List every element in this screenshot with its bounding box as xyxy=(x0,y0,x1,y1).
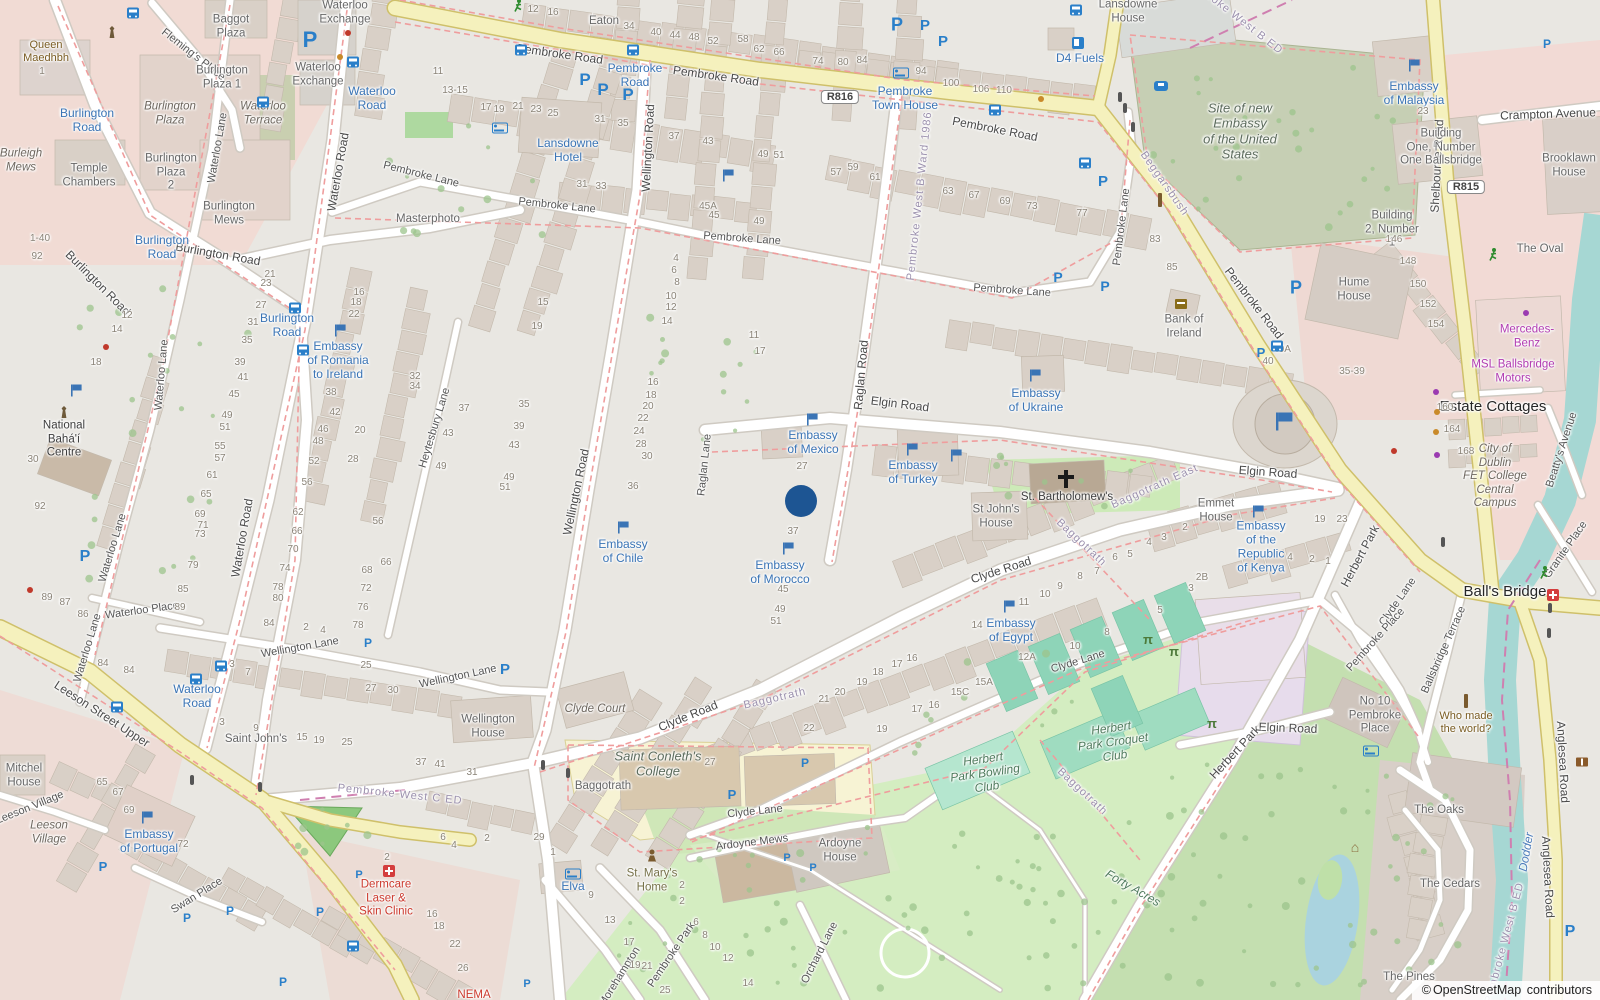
house-number: 41 xyxy=(434,759,445,771)
house-number: 14 xyxy=(111,324,122,336)
house-number: 94 xyxy=(915,66,926,78)
traffic-icon xyxy=(1547,628,1551,638)
house-number: 3 xyxy=(229,659,235,671)
house-number: 11 xyxy=(1019,597,1029,609)
house-number: 15 xyxy=(537,297,548,309)
house-number: 55 xyxy=(214,441,225,453)
flag-icon xyxy=(781,542,795,561)
bus-icon xyxy=(347,57,359,68)
map-label-beatty-s-avenue: Beatty's Avenue xyxy=(1544,411,1581,490)
house-number: 78 xyxy=(272,582,283,594)
bank-icon xyxy=(1175,299,1187,309)
map-label-elgin-road: Elgin Road xyxy=(1258,720,1317,736)
house-number: 39 xyxy=(513,421,524,433)
map-label-st-john-s-house: St John's House xyxy=(973,503,1020,530)
map-attribution: ©OpenStreetMap contributors xyxy=(1412,981,1600,1000)
flag-big-icon xyxy=(1273,411,1295,438)
shop-dot-purple-icon xyxy=(1523,310,1529,316)
map-label-beggarsbush: Beggarsbush xyxy=(1137,149,1191,219)
map-label-embassy-of-egypt: Embassy of Egypt xyxy=(986,616,1035,644)
shop-dot-red-icon xyxy=(103,344,109,350)
map-label-masterphoto: Masterphoto xyxy=(396,213,460,227)
house-number: 34 xyxy=(623,21,634,33)
parking-icon: P xyxy=(1543,35,1551,53)
parking-icon: P xyxy=(938,33,948,51)
house-number: 40 xyxy=(1262,356,1273,368)
map-label-embassy-of-morocco: Embassy of Morocco xyxy=(750,558,809,586)
map-label-bank-of-ireland: Bank of Ireland xyxy=(1165,313,1204,340)
house-number: 18 xyxy=(433,921,444,933)
house-number: 6 xyxy=(1112,552,1118,564)
house-number: 69 xyxy=(999,196,1010,208)
parking-icon: P xyxy=(355,865,362,883)
house-number: 2 xyxy=(1309,554,1315,566)
attribution-suffix: contributors xyxy=(1527,983,1592,997)
parking-icon: P xyxy=(579,70,590,90)
map-label-forty-acres: Forty Acres xyxy=(1103,867,1163,910)
parking-icon: P xyxy=(1098,173,1108,191)
house-number: 41 xyxy=(237,372,248,384)
house-number: 49 xyxy=(221,410,232,422)
house-number: 45 xyxy=(777,584,788,596)
house-number: 110 xyxy=(996,85,1012,97)
parking-icon: P xyxy=(226,902,234,920)
map-label-embassy-of-chile: Embassy of Chile xyxy=(598,537,647,565)
parking-icon: P xyxy=(783,848,790,866)
map-label-pembroke-road: Pembroke Road xyxy=(516,41,604,67)
map-label-building-one-number-one-ballsbridge: Building One, Number One Ballsbridge xyxy=(1400,128,1482,169)
house-number: 14 xyxy=(661,316,672,328)
house-number: 16 xyxy=(928,700,939,712)
map-labels-layer: Pembroke RoadPembroke RoadPembroke RoadP… xyxy=(0,0,1600,1000)
house-number: 1 xyxy=(39,66,45,78)
traffic-icon xyxy=(566,768,570,778)
map-label-waterloo-lane: Waterloo Lane xyxy=(205,112,230,184)
house-number: 18 xyxy=(645,390,656,402)
route-shield-r816: R816 xyxy=(821,90,859,104)
house-number: 17 xyxy=(911,704,922,716)
house-number: 29 xyxy=(533,832,544,844)
house-number: 70 xyxy=(287,544,298,556)
parking-icon: P xyxy=(1100,278,1109,296)
house-number: 56 xyxy=(372,516,383,528)
map-label-morehampton: Morehampton xyxy=(597,945,644,1000)
map-label-nema: NEMA xyxy=(457,989,490,1000)
flag-icon xyxy=(805,413,819,432)
parking-icon: P xyxy=(1565,923,1576,941)
house-number: 15 xyxy=(296,732,307,744)
house-number: 79 xyxy=(187,560,198,572)
map-label-site-of-new-embassy-of-the-united-states: Site of new Embassy of the United States xyxy=(1203,100,1277,161)
map-label-baggot-plaza: Baggot Plaza xyxy=(213,13,249,40)
house-number: 168 xyxy=(1458,446,1475,458)
house-number: 92 xyxy=(34,501,45,513)
house-number: 13 xyxy=(604,915,615,927)
house-number: 15A xyxy=(975,677,993,689)
house-number: 19 xyxy=(876,724,887,736)
house-number: 26 xyxy=(457,963,468,975)
attribution-copyright: © xyxy=(1422,983,1431,997)
bed-icon xyxy=(893,68,909,79)
map-label-waterloo-lane: Waterloo Lane xyxy=(71,612,104,684)
traffic-icon xyxy=(1123,103,1127,113)
house-number: 62 xyxy=(292,507,303,519)
flag-icon xyxy=(905,443,919,462)
map-label-embassy-of-romania-to-ireland: Embassy of Romania to Ireland xyxy=(307,339,368,381)
house-number: 1 xyxy=(1325,556,1331,568)
house-number: 20 xyxy=(354,425,365,437)
house-number: 49 xyxy=(757,149,768,161)
house-number: 85 xyxy=(1166,262,1177,274)
house-number: 35 xyxy=(518,399,529,411)
house-number: 8 xyxy=(702,930,708,942)
flag-icon xyxy=(949,449,963,468)
parking-icon: P xyxy=(279,973,287,991)
map-label-waterloo-road: Waterloo Road xyxy=(228,498,256,579)
house-number: 21 xyxy=(818,694,829,706)
map-label-orchard-lane: Orchard Lane xyxy=(799,920,841,986)
map-label-crampton-avenue: Crampton Avenue xyxy=(1500,105,1596,122)
house-number: 44 xyxy=(669,30,680,42)
house-number: 49 xyxy=(753,216,764,228)
flag-icon xyxy=(1407,59,1421,78)
house-number: 78 xyxy=(352,620,363,632)
house-number: 84 xyxy=(97,658,108,670)
map-label-dodder: Dodder xyxy=(1516,831,1537,872)
flag-icon xyxy=(721,169,735,188)
map-label-baggotrath: Baggotrath xyxy=(575,780,631,794)
shelter-icon: ⌂ xyxy=(1351,839,1359,857)
house-number: 43 xyxy=(508,440,519,452)
house-number: 85 xyxy=(177,584,188,596)
traffic-icon xyxy=(1131,122,1135,132)
map-label-pembroke-place: Pembroke Place xyxy=(1344,606,1408,675)
map-label-pembroke-park: Pembroke Park xyxy=(645,920,698,990)
map-label-waterloo-road: Waterloo Road xyxy=(324,132,352,213)
house-number: 9 xyxy=(253,723,259,735)
house-number: 57 xyxy=(214,453,225,465)
house-number: 18 xyxy=(90,357,101,369)
house-number: 2 xyxy=(303,622,309,634)
map-label-baggotrath: Baggotrath xyxy=(742,686,807,713)
flag-icon xyxy=(1251,505,1265,524)
house-number: 4 xyxy=(1287,552,1293,564)
shop-dot-purple-icon xyxy=(1433,389,1439,395)
house-number: 5 xyxy=(1157,605,1163,617)
house-number: 76 xyxy=(357,602,368,614)
house-number: 17 xyxy=(480,102,491,114)
house-number: 164 xyxy=(1444,424,1461,436)
house-number: 39 xyxy=(234,357,245,369)
map-label-baggotrath-east: Baggotrath East xyxy=(1109,462,1200,512)
house-number: 3 xyxy=(1161,532,1167,544)
house-number: 35-39 xyxy=(1339,366,1365,378)
shop-dot-amber-icon xyxy=(1434,409,1440,415)
house-number: 37 xyxy=(668,131,679,143)
house-number: 51 xyxy=(219,422,230,434)
house-number: 2 xyxy=(384,852,390,864)
house-number: 150 xyxy=(1410,279,1427,291)
map-label-wellington-road: Wellington Road xyxy=(639,104,658,192)
house-number: 45 xyxy=(708,210,719,222)
map-label-emmet-house: Emmet House xyxy=(1198,497,1234,524)
fuel-icon xyxy=(1072,37,1084,49)
firstaid-icon xyxy=(383,865,395,877)
parking-icon: P xyxy=(809,858,816,876)
parking-icon: P xyxy=(801,754,809,772)
map-label-burlington-plaza-2: Burlington Plaza 2 xyxy=(145,153,197,194)
bus-icon xyxy=(515,45,527,56)
parking-icon: P xyxy=(597,80,608,100)
house-number: 6 xyxy=(440,832,446,844)
map-label-hume-house: Hume House xyxy=(1337,276,1370,303)
map-label-waterloo-lane: Waterloo Lane xyxy=(96,512,129,584)
map-label-waterloo-road: Waterloo Road xyxy=(348,84,396,112)
house-number: 16 xyxy=(906,653,917,665)
house-number: 18 xyxy=(350,297,361,309)
house-number: 12 xyxy=(665,302,676,314)
map-label-burlington-plaza-1: Burlington Plaza 1 xyxy=(196,64,248,91)
house-number: 2 xyxy=(1182,522,1188,534)
map-label-burlington-road: Burlington Road xyxy=(135,233,189,261)
person-icon xyxy=(645,849,659,868)
map-label-baggotrath: Baggotrath xyxy=(1054,765,1110,818)
house-number: 11 xyxy=(433,66,443,78)
house-number: 8 xyxy=(1104,627,1110,639)
map-label-ballsbridge-terrace: Ballsbridge Terrace xyxy=(1419,604,1469,695)
map-label-leeson-village: Leeson Village xyxy=(0,789,66,828)
map-label-granite-place: Granite Place xyxy=(1542,519,1591,581)
house-number: 21 xyxy=(264,269,275,281)
house-number: 38 xyxy=(325,387,336,399)
flag-icon xyxy=(1002,600,1016,619)
map-label-clyde-road: Clyde Road xyxy=(969,554,1033,587)
shop-dot-red-icon xyxy=(27,587,33,593)
map-label-pembroke-road: Pembroke Road xyxy=(1222,264,1287,341)
house-number: 30 xyxy=(27,454,38,466)
map-label-st-mary-s-home: St. Mary's Home xyxy=(627,867,678,894)
map-label-anglesea-road: Anglesea Road xyxy=(1539,836,1557,919)
route-shield-r815: R815 xyxy=(1447,180,1485,194)
house-number: 10 xyxy=(1039,589,1050,601)
map-label-wellington-lane: Wellington Lane xyxy=(418,662,498,691)
bus-icon xyxy=(127,8,139,19)
house-number: 8 xyxy=(674,277,680,289)
bus-icon xyxy=(257,97,269,108)
map-label-elgin-road: Elgin Road xyxy=(1238,463,1298,481)
map-label-pembroke-lane: Pembroke Lane xyxy=(973,282,1051,300)
runner-icon xyxy=(1538,566,1550,585)
bed-icon xyxy=(565,869,581,880)
house-number: 17 xyxy=(891,659,902,671)
house-number: 19 xyxy=(629,960,640,972)
house-number: 92 xyxy=(31,251,42,263)
map-label-pembroke-lane: Pembroke Lane xyxy=(703,230,781,248)
house-number: 37 xyxy=(787,526,798,538)
map-label-lansdowne-house: Lansdowne House xyxy=(1099,0,1158,26)
map-label-pembroke-road: Pembroke Road xyxy=(951,114,1039,144)
map-label-shelbourne-road: Shelbourne Road xyxy=(1427,119,1446,213)
map-label-herbert-park: Herbert Park xyxy=(1338,523,1382,590)
house-number: 10 xyxy=(1069,641,1080,653)
parking-icon: P xyxy=(728,786,737,804)
house-number: 62 xyxy=(753,44,764,56)
map-label-eaton: Eaton xyxy=(589,15,619,29)
house-number: 19 xyxy=(313,735,324,747)
map-label-anglesea-road: Anglesea Road xyxy=(1554,721,1572,804)
house-number: 48 xyxy=(688,32,699,44)
house-number: 9 xyxy=(1057,581,1063,593)
map-label-pembroke-lane: Pembroke Lane xyxy=(518,195,597,216)
map-label-pembroke-lane: Pembroke Lane xyxy=(1111,188,1133,267)
house-number: 31 xyxy=(594,114,605,126)
map-label-clyde-road: Clyde Road xyxy=(656,698,719,735)
house-number: 16 xyxy=(647,377,658,389)
house-number: 36 xyxy=(627,481,638,493)
house-number: 33 xyxy=(595,181,606,193)
map-label-waterloo-place: Waterloo Place xyxy=(104,599,179,622)
map-label-swan-place: Swan Place xyxy=(169,875,225,917)
traffic-icon xyxy=(1548,603,1552,613)
map-label-embassy-of-portugal: Embassy of Portugal xyxy=(120,827,178,855)
map-label-burlington-road: Burlington Road xyxy=(174,240,261,269)
house-number: 24 xyxy=(633,426,644,438)
shop-dot-purple-icon xyxy=(1434,452,1440,458)
house-number: 10 xyxy=(709,942,720,954)
house-number: 27 xyxy=(704,757,715,769)
house-number: 12A xyxy=(1018,652,1036,664)
map-label-embassy-of-turkey: Embassy of Turkey xyxy=(888,458,937,486)
shop-dot-red-icon xyxy=(1391,448,1397,454)
parking-icon: P xyxy=(316,903,324,921)
house-number: 19 xyxy=(493,104,504,116)
house-number: 68 xyxy=(361,565,372,577)
map-label-city-of-dublin-fet-college-central-campu: City of Dublin FET College Central Campu… xyxy=(1463,443,1527,511)
house-number: 100 xyxy=(943,78,960,90)
book-icon xyxy=(1576,758,1588,767)
house-number: 72 xyxy=(360,583,371,595)
house-number: 14 xyxy=(971,620,982,632)
bollard-icon xyxy=(1464,694,1468,708)
house-number: 19 xyxy=(856,677,867,689)
house-number: 9 xyxy=(588,890,594,902)
map-label-saint-john-s: Saint John's xyxy=(225,733,287,747)
map-label-building-2-number-1: Building 2, Number 1 xyxy=(1365,210,1419,251)
house-number: 152 xyxy=(1420,299,1437,311)
house-number: 42 xyxy=(329,407,340,419)
flag-icon xyxy=(69,384,83,403)
house-number: 7 xyxy=(245,667,251,679)
bus-icon xyxy=(627,45,639,56)
firstaid-icon xyxy=(1547,589,1559,601)
house-number: 25 xyxy=(547,108,558,120)
taxi-icon xyxy=(1154,81,1168,91)
house-number: 8 xyxy=(1077,571,1083,583)
house-number: 25 xyxy=(341,737,352,749)
house-number: 19 xyxy=(1314,514,1325,526)
house-number: 17 xyxy=(754,346,765,358)
house-number: 74 xyxy=(812,56,823,68)
house-number: 45A xyxy=(699,201,717,213)
bus-icon xyxy=(289,303,301,314)
bus-icon xyxy=(1271,341,1283,352)
house-number: 59 xyxy=(847,162,858,174)
house-number: 146 xyxy=(1386,234,1403,246)
map-label-the-cedars: The Cedars xyxy=(1420,878,1480,892)
house-number: 4 xyxy=(673,253,679,265)
house-number: 28 xyxy=(635,439,646,451)
house-number: 87 xyxy=(59,597,70,609)
house-number: 160 xyxy=(1437,402,1454,414)
house-number: 21 xyxy=(512,101,523,113)
house-number: 16 xyxy=(353,287,364,299)
bus-icon xyxy=(297,345,309,356)
house-number: 2 xyxy=(484,833,490,845)
map-canvas[interactable]: Pembroke RoadPembroke RoadPembroke RoadP… xyxy=(0,0,1600,1000)
house-number: 2 xyxy=(679,896,685,908)
bus-icon xyxy=(1070,5,1082,16)
picnic-icon: π xyxy=(1143,631,1153,649)
map-label-pembroke-west-b-ward-1986: Pembroke West B Ward 1986 xyxy=(905,111,936,281)
house-number: 23 xyxy=(1417,106,1428,118)
house-number: 45 xyxy=(228,389,239,401)
house-number: 10 xyxy=(665,291,676,303)
house-number: 25 xyxy=(360,660,371,672)
house-number: 34 xyxy=(409,381,420,393)
map-label-elgin-road: Elgin Road xyxy=(870,393,930,414)
map-label-leeson-village: Leeson Village xyxy=(30,819,68,846)
attribution-osm-link[interactable]: OpenStreetMap xyxy=(1433,983,1521,997)
house-number: 40A xyxy=(1273,344,1291,356)
house-number: 30 xyxy=(641,451,652,463)
house-number: 20 xyxy=(642,401,653,413)
map-label-herbert-park-croquet-club: Herbert Park Croquet Club xyxy=(1075,716,1151,768)
house-number: 28 xyxy=(347,454,358,466)
monument-icon xyxy=(108,26,116,38)
house-number: 21 xyxy=(641,961,652,973)
parking-icon: P xyxy=(183,909,191,927)
house-number: 2B xyxy=(1196,572,1208,584)
map-label-embassy-of-ukraine: Embassy of Ukraine xyxy=(1009,386,1064,414)
house-number: 27 xyxy=(365,683,376,695)
parking-icon: P xyxy=(523,974,530,992)
house-number: 84 xyxy=(856,55,867,67)
map-label-burlington-road: Burlington Road xyxy=(60,106,114,134)
house-number: 23 xyxy=(1336,514,1347,526)
picnic-icon: π xyxy=(1169,643,1179,661)
map-label-queen-maedhbh: Queen Maedhbh xyxy=(23,39,69,65)
house-number: 22 xyxy=(449,939,460,951)
parking-icon: P xyxy=(622,85,633,105)
map-label-temple-chambers: Temple Chambers xyxy=(62,162,115,189)
map-label-ball-s-bridge: Ball's Bridge xyxy=(1464,583,1547,601)
parking-icon: P xyxy=(891,15,903,36)
map-label-baggotrath: Baggotrath xyxy=(1053,516,1109,569)
house-number: 106 xyxy=(973,84,990,96)
house-number: 154 xyxy=(1428,319,1445,331)
shop-dot-amber-icon xyxy=(1433,429,1439,435)
bus-icon xyxy=(347,941,359,952)
house-number: 16 xyxy=(547,7,558,19)
house-number: 1 xyxy=(550,847,556,859)
house-number: 51 xyxy=(773,150,784,162)
flag-icon xyxy=(140,811,154,830)
house-number: 6 xyxy=(693,917,699,929)
map-label-clyde-lane: Clyde Lane xyxy=(1377,575,1420,628)
house-number: 3 xyxy=(219,717,225,729)
traffic-icon xyxy=(258,782,262,792)
map-label-herbert-park: Herbert Park xyxy=(1207,722,1264,781)
